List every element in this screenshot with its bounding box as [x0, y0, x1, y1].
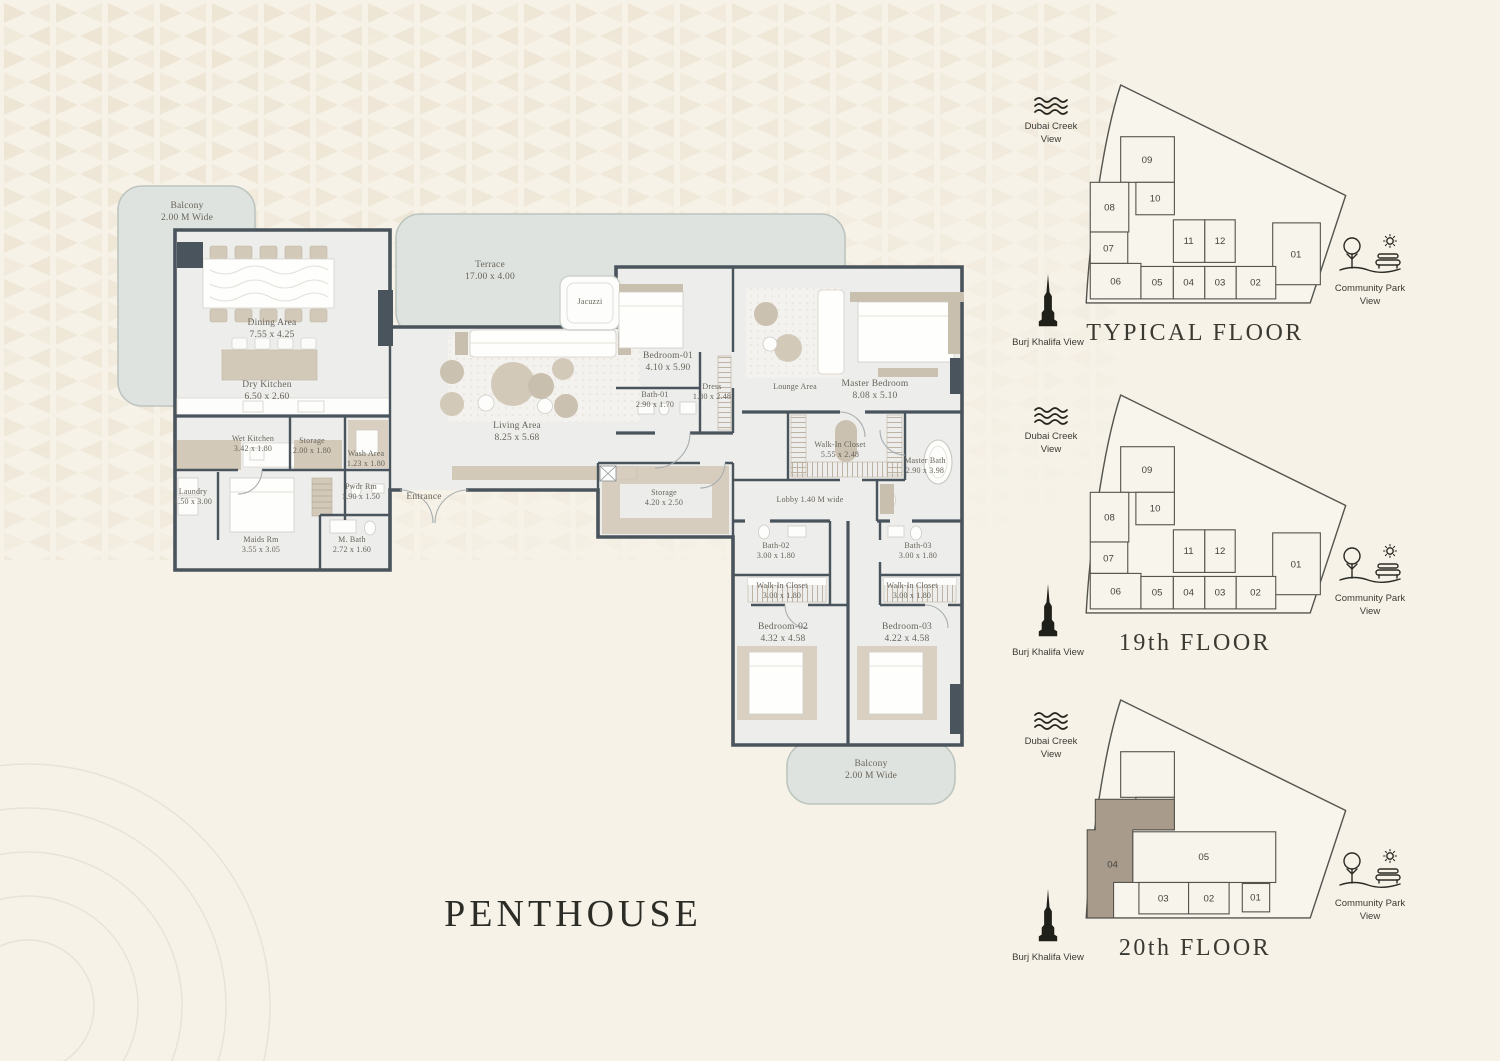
room-label-line: 2.00 M Wide	[845, 770, 897, 782]
room-label-line: 1.50 x 3.00	[174, 497, 212, 507]
lounge-set	[746, 288, 844, 378]
view-label: Dubai Creek View	[1025, 431, 1078, 455]
room-label-pwdr-rm: Pwdr Rm1.90 x 1.50	[342, 482, 380, 502]
room-label-line: M. Bath	[333, 535, 371, 545]
room-label-laundry: Laundry1.50 x 3.00	[174, 487, 212, 507]
waves-icon	[1031, 95, 1071, 117]
room-label-line: Jacuzzi	[578, 297, 603, 307]
bath3-sink	[888, 526, 904, 537]
bath2-wc	[759, 525, 770, 539]
room-label-bath-01: Bath-012.90 x 1.70	[636, 390, 674, 410]
room-label-wet-kitchen: Wet Kitchen3.42 x 1.80	[232, 434, 274, 454]
room-label-wash-area: Wash Area1.23 x 1.80	[347, 449, 385, 469]
room-label-line: Storage	[293, 436, 331, 446]
bed1	[619, 292, 683, 348]
room-label-line: 8.08 x 5.10	[842, 390, 909, 402]
room-label-line: 4.20 x 2.50	[645, 498, 683, 508]
room-label-line: Master Bedroom	[842, 378, 909, 390]
unit-number-02: 02	[1203, 894, 1214, 905]
room-label-m-bath: M. Bath2.72 x 1.60	[333, 535, 371, 555]
room-label-bedroom-03: Bedroom-034.22 x 4.58	[882, 621, 932, 645]
room-label-line: Terrace	[465, 259, 515, 271]
room-label-line: Laundry	[174, 487, 212, 497]
room-label-line: 17.00 x 4.00	[465, 271, 515, 283]
unit-number-03: 03	[1158, 894, 1169, 905]
page-title: PENTHOUSE	[373, 892, 773, 936]
unit-number-11: 11	[1184, 236, 1194, 247]
unit-number-06: 06	[1110, 587, 1121, 598]
room-label-lobby: Lobby 1.40 M wide	[777, 495, 844, 505]
room-label-line: Lobby 1.40 M wide	[777, 495, 844, 505]
room-label-line: Bedroom-02	[758, 621, 808, 633]
unit-number-10: 10	[1150, 194, 1161, 205]
room-label-walk-in-closet-master: Walk-In Closet5.55 x 2.48	[814, 440, 865, 460]
room-label-line: 2.00 M Wide	[161, 212, 213, 224]
keyplan-19th-floor: Dubai Creek View Burj Khalifa View	[1010, 393, 1490, 705]
mbath-wc	[365, 521, 376, 535]
master-vanity	[880, 484, 894, 514]
master-wardrobe	[948, 296, 960, 354]
waves-icon	[1031, 710, 1071, 732]
waves-icon	[1031, 405, 1071, 427]
room-label-line: 3.00 x 1.80	[757, 551, 795, 561]
dining-table-set	[203, 246, 334, 322]
unit-number-01: 01	[1291, 559, 1302, 570]
bath3-wc	[911, 526, 922, 540]
brochure-page: Balcony2.00 M WideTerrace17.00 x 4.00Jac…	[0, 0, 1500, 1061]
unit-number-08: 08	[1104, 513, 1115, 524]
room-label-line: Walk-In Closet	[756, 581, 807, 591]
unit-number-03: 03	[1215, 588, 1226, 599]
concentric-circles-decor	[0, 764, 270, 1061]
room-label-line: Bedroom-03	[882, 621, 932, 633]
room-label-storage-2: Storage4.20 x 2.50	[645, 488, 683, 508]
room-label-line: Dry Kitchen	[242, 379, 291, 391]
unit-number-03: 03	[1215, 278, 1226, 289]
room-label-line: 3.42 x 1.80	[232, 444, 274, 454]
bed2	[749, 652, 803, 714]
unit-number-04: 04	[1183, 278, 1194, 289]
unit-number-12: 12	[1215, 546, 1226, 557]
room-label-line: Maids Rm	[242, 535, 280, 545]
room-label-bedroom-01: Bedroom-014.10 x 5.90	[643, 350, 693, 374]
room-label-storage-1: Storage2.00 x 1.80	[293, 436, 331, 456]
master-bed	[858, 302, 954, 362]
bath1-shower	[680, 402, 696, 414]
room-label-line: 4.22 x 4.58	[882, 633, 932, 645]
view-dubai-creek: Dubai Creek View	[1020, 710, 1082, 762]
floor-title-20th: 20th FLOOR	[1045, 935, 1345, 962]
unit-number-07: 07	[1103, 553, 1114, 564]
unit-number-12: 12	[1215, 236, 1226, 247]
room-label-line: Lounge Area	[773, 382, 817, 392]
master-headboard	[850, 292, 964, 302]
room-label-line: Dining Area	[248, 317, 297, 329]
room-label-line: Wash Area	[347, 449, 385, 459]
room-label-line: Bath-03	[899, 541, 937, 551]
room-label-line: 3.00 x 1.80	[886, 591, 937, 601]
floor-title-typical: TYPICAL FLOOR	[1045, 320, 1345, 347]
room-label-line: 1.90 x 1.50	[342, 492, 380, 502]
room-label-line: Dress	[693, 382, 731, 392]
unit-number-04: 04	[1107, 859, 1118, 870]
room-label-dry-kitchen: Dry Kitchen6.50 x 2.60	[242, 379, 291, 403]
room-label-line: 1.23 x 1.80	[347, 459, 385, 469]
room-label-line: 4.32 x 4.58	[758, 633, 808, 645]
unit-number-10: 10	[1150, 504, 1161, 515]
room-label-walk-in-closet-03: Walk-In Closet3.00 x 1.80	[886, 581, 937, 601]
room-label-line: Balcony	[845, 758, 897, 770]
room-label-line: Bedroom-01	[643, 350, 693, 362]
unit-number-06: 06	[1110, 277, 1121, 288]
room-label-living-area: Living Area8.25 x 5.68	[493, 420, 541, 444]
keyplan-svg-19th: 091008071112010605040302	[1085, 393, 1355, 617]
unit-number-05: 05	[1152, 278, 1163, 289]
room-label-line: 2.90 x 3.98	[904, 466, 946, 476]
room-label-line: Bath-02	[757, 541, 795, 551]
view-dubai-creek: Dubai Creek View	[1020, 405, 1082, 457]
room-label-line: 1.80 x 2.48	[693, 392, 731, 402]
unit-number-04: 04	[1183, 588, 1194, 599]
room-label-balcony-bottom: Balcony2.00 M Wide	[845, 758, 897, 782]
room-label-lounge-area: Lounge Area	[773, 382, 817, 392]
room-label-line: Balcony	[161, 200, 213, 212]
room-label-line: Walk-In Closet	[814, 440, 865, 450]
room-label-line: 3.00 x 1.80	[899, 551, 937, 561]
room-label-terrace: Terrace17.00 x 4.00	[465, 259, 515, 283]
room-label-line: Living Area	[493, 420, 541, 432]
room-label-walk-in-closet-02: Walk-In Closet3.00 x 1.80	[756, 581, 807, 601]
room-label-line: 2.72 x 1.60	[333, 545, 371, 555]
room-label-line: 2.90 x 1.70	[636, 400, 674, 410]
view-dubai-creek: Dubai Creek View	[1020, 95, 1082, 147]
unit-number-01: 01	[1291, 249, 1302, 260]
unit-number-07: 07	[1103, 243, 1114, 254]
view-label: Dubai Creek View	[1025, 121, 1078, 145]
room-label-line: 3.00 x 1.80	[756, 591, 807, 601]
room-label-line: Wet Kitchen	[232, 434, 274, 444]
unit-number-02: 02	[1250, 278, 1261, 289]
room-label-line: Storage	[645, 488, 683, 498]
bath2-sink	[788, 526, 806, 537]
room-label-line: 3.55 x 3.05	[242, 545, 280, 555]
keyplan-svg-typical: 091008071112010605040302	[1085, 83, 1355, 307]
room-label-master-bedroom: Master Bedroom8.08 x 5.10	[842, 378, 909, 402]
room-label-line: Entrance	[406, 491, 441, 503]
view-label: Dubai Creek View	[1025, 736, 1078, 760]
bed-bench	[878, 368, 938, 377]
bed1-headboard	[619, 284, 683, 292]
room-label-line: 8.25 x 5.68	[493, 432, 541, 444]
mbath-vanity	[330, 520, 356, 533]
unit-number-08: 08	[1104, 203, 1115, 214]
maids-bed	[230, 478, 294, 532]
room-label-line: 6.50 x 2.60	[242, 391, 291, 403]
room-label-maids-rm: Maids Rm3.55 x 3.05	[242, 535, 280, 555]
room-label-line: Bath-01	[636, 390, 674, 400]
bed3	[869, 652, 923, 714]
room-label-entrance: Entrance	[406, 491, 441, 503]
floor-title-19th: 19th FLOOR	[1045, 630, 1345, 657]
room-label-line: 2.00 x 1.80	[293, 446, 331, 456]
room-label-dress: Dress1.80 x 2.48	[693, 382, 731, 402]
unit-number-11: 11	[1184, 546, 1194, 557]
unit-block	[1121, 752, 1175, 798]
unit-number-09: 09	[1142, 155, 1153, 166]
unit-number-09: 09	[1142, 465, 1153, 476]
room-label-jacuzzi: Jacuzzi	[578, 297, 603, 307]
room-label-master-bath: Master Bath2.90 x 3.98	[904, 456, 946, 476]
room-label-balcony-top: Balcony2.00 M Wide	[161, 200, 213, 224]
unit-number-02: 02	[1250, 588, 1261, 599]
keyplan-svg-20th: 0405030201	[1085, 698, 1355, 922]
unit-number-05: 05	[1152, 588, 1163, 599]
room-label-line: 4.10 x 5.90	[643, 362, 693, 374]
keyplan-typical-floor: Dubai Creek View Burj Khalifa View	[1010, 83, 1490, 395]
room-label-line: 5.55 x 2.48	[814, 450, 865, 460]
room-label-line: Walk-In Closet	[886, 581, 937, 591]
room-label-line: Master Bath	[904, 456, 946, 466]
room-label-bedroom-02: Bedroom-024.32 x 4.58	[758, 621, 808, 645]
room-label-line: 7.55 x 4.25	[248, 329, 297, 341]
keyplan-20th-floor: Dubai Creek View Burj Khalifa View	[1010, 698, 1490, 1010]
room-label-bath-03: Bath-033.00 x 1.80	[899, 541, 937, 561]
room-label-bath-02: Bath-023.00 x 1.80	[757, 541, 795, 561]
unit-number-05: 05	[1198, 852, 1209, 863]
unit-number-01: 01	[1250, 893, 1261, 904]
room-label-line: Pwdr Rm	[342, 482, 380, 492]
kitchen-island	[222, 338, 317, 380]
room-label-dining-area: Dining Area7.55 x 4.25	[248, 317, 297, 341]
